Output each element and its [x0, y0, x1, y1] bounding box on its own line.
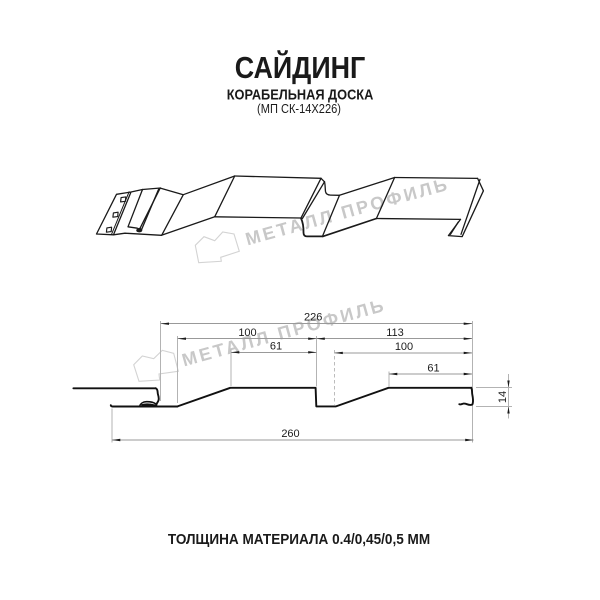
- svg-text:100: 100: [238, 327, 256, 339]
- svg-text:260: 260: [281, 428, 299, 440]
- svg-text:61: 61: [427, 363, 439, 375]
- svg-text:МЕТАЛЛ ПРОФИЛЬ: МЕТАЛЛ ПРОФИЛЬ: [243, 174, 451, 250]
- svg-text:61: 61: [270, 341, 282, 353]
- svg-text:14: 14: [497, 391, 509, 403]
- svg-text:МЕТАЛЛ ПРОФИЛЬ: МЕТАЛЛ ПРОФИЛЬ: [180, 295, 388, 371]
- svg-text:САЙДИНГ: САЙДИНГ: [235, 49, 366, 85]
- svg-text:113: 113: [386, 327, 404, 339]
- svg-text:КОРАБЕЛЬНАЯ ДОСКА: КОРАБЕЛЬНАЯ ДОСКА: [227, 87, 374, 103]
- svg-text:100: 100: [395, 341, 413, 353]
- svg-text:ТОЛЩИНА МАТЕРИАЛА 0.4/0,45/0,5: ТОЛЩИНА МАТЕРИАЛА 0.4/0,45/0,5 ММ: [168, 531, 430, 548]
- svg-text:(МП СК-14Х226): (МП СК-14Х226): [257, 101, 341, 116]
- svg-text:226: 226: [304, 312, 322, 324]
